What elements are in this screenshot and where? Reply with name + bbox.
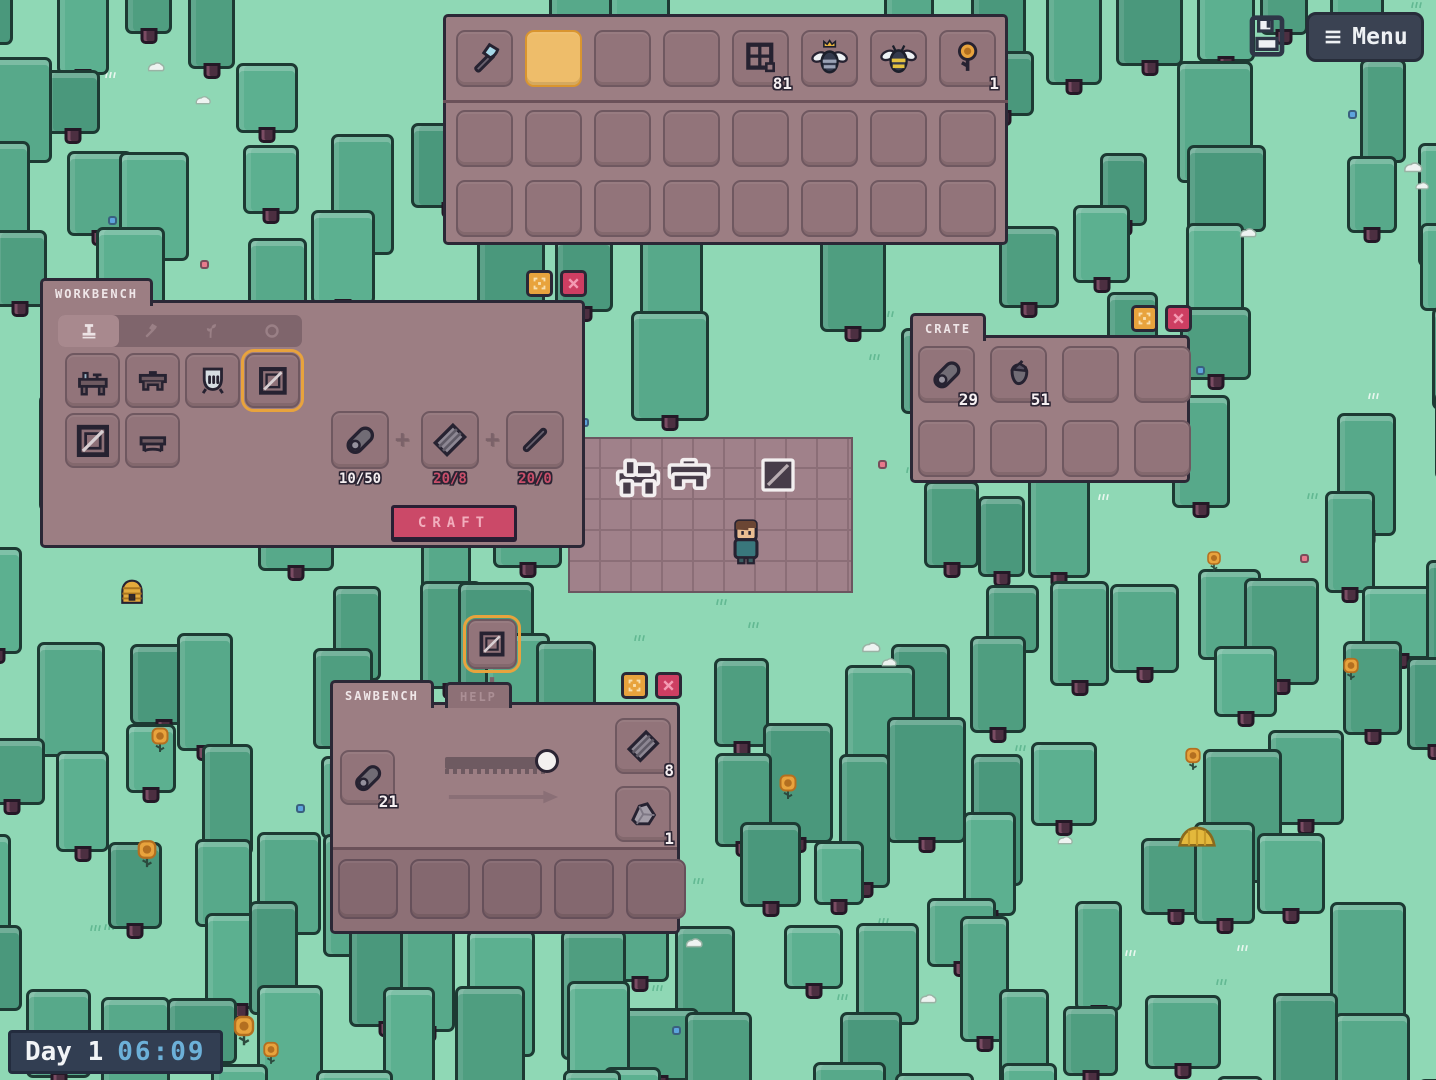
rock	[684, 936, 704, 949]
ingredient-stick	[506, 411, 564, 469]
log-icon	[349, 759, 387, 797]
empty-slot[interactable]	[482, 859, 542, 919]
arrow-right-icon	[445, 787, 563, 807]
saw-progress-handle	[535, 749, 559, 773]
saw-input-slot[interactable]: 21	[340, 750, 395, 805]
hamburger-icon	[1322, 26, 1344, 48]
sawbench-title: SAWBENCH	[330, 680, 434, 708]
empty-slot[interactable]	[732, 110, 789, 167]
empty-slot[interactable]	[663, 110, 720, 167]
day-time-badge: Day 1 06:09	[8, 1030, 223, 1074]
blue-flower	[672, 1026, 681, 1035]
floppy-disk-icon	[1247, 14, 1287, 58]
sunflower	[1206, 550, 1222, 574]
move-icon	[531, 275, 548, 292]
empty-slot[interactable]	[525, 180, 582, 237]
bench-tab-icon	[78, 320, 100, 342]
seedling-tab-icon	[200, 320, 222, 342]
rock	[860, 640, 882, 654]
tab-misc[interactable]	[241, 315, 302, 347]
move-window-button[interactable]	[526, 270, 553, 297]
crate-icon	[475, 627, 509, 661]
red-flower	[1300, 554, 1309, 563]
workbench-icon	[74, 362, 112, 400]
blue-flower	[1196, 366, 1205, 375]
empty-slot[interactable]	[732, 180, 789, 237]
menu-label: Menu	[1352, 24, 1407, 50]
empty-slot[interactable]	[594, 180, 651, 237]
rock	[1402, 160, 1424, 174]
item-count: 1	[664, 831, 674, 847]
close-icon	[660, 677, 677, 694]
sunflower	[778, 773, 798, 803]
close-icon	[1170, 310, 1187, 327]
log-icon	[927, 355, 966, 394]
furnace-icon	[194, 362, 232, 400]
empty-slot[interactable]	[1134, 346, 1191, 403]
hotbar-slot-flower[interactable]: 1	[939, 30, 996, 87]
day-label: Day 1	[25, 1037, 103, 1067]
blue-flower	[296, 804, 305, 813]
sunflower	[262, 1040, 280, 1068]
red-flower	[878, 460, 887, 469]
ingredient-log	[331, 411, 389, 469]
hotbar: 81 1	[456, 30, 996, 87]
blue-flower	[108, 216, 117, 225]
ingredient-plank	[421, 411, 479, 469]
empty-slot[interactable]	[870, 180, 927, 237]
plank-icon	[430, 420, 470, 460]
empty-slot[interactable]	[626, 859, 686, 919]
empty-slot[interactable]	[801, 110, 858, 167]
empty-slot[interactable]	[1134, 420, 1191, 477]
crate-icon	[254, 362, 292, 400]
craft-item-furnace[interactable]	[185, 353, 240, 408]
close-window-button[interactable]	[1165, 305, 1192, 332]
item-count: 21	[379, 794, 398, 810]
sawbench-icon	[134, 362, 172, 400]
crate-grid: 29 51	[918, 346, 1191, 477]
rock	[1238, 226, 1258, 239]
close-window-button[interactable]	[560, 270, 587, 297]
empty-slot[interactable]	[918, 420, 975, 477]
craft-item-crate-selected[interactable]	[245, 353, 300, 408]
item-count: 1	[989, 76, 999, 92]
bench-icon	[134, 422, 172, 460]
move-icon	[1136, 310, 1153, 327]
acorn-icon	[999, 355, 1038, 394]
bee-icon	[879, 39, 918, 78]
craft-item-sawbench[interactable]	[125, 353, 180, 408]
plank-icon	[624, 727, 662, 765]
empty-slot[interactable]	[456, 180, 513, 237]
empty-slot[interactable]	[990, 420, 1047, 477]
inventory-grid	[456, 110, 996, 237]
crate-panel: CRATE 29 51	[910, 335, 1190, 483]
close-window-button[interactable]	[655, 672, 682, 699]
craft-item-big-crate[interactable]	[65, 413, 120, 468]
rock	[918, 992, 938, 1005]
saw-output-sawdust[interactable]: 1	[615, 786, 671, 842]
beehive	[118, 576, 146, 608]
empty-slot[interactable]	[410, 859, 470, 919]
empty-slot[interactable]	[554, 859, 614, 919]
move-window-button[interactable]	[1131, 305, 1158, 332]
window-icon	[741, 39, 780, 78]
sunflower	[1184, 746, 1202, 774]
game-viewport: 81 1 WORKBENCH	[0, 0, 1436, 1080]
tab-farming[interactable]	[180, 315, 241, 347]
tab-tools[interactable]	[119, 315, 180, 347]
empty-slot[interactable]	[1062, 346, 1119, 403]
hotbar-slot-queen-bee[interactable]	[801, 30, 858, 87]
menu-button[interactable]: Menu	[1306, 12, 1424, 62]
hotbar-slot-selected[interactable]	[525, 30, 582, 87]
inventory-panel: 81 1	[443, 14, 1008, 245]
crate-slot-acorn[interactable]: 51	[990, 346, 1047, 403]
big-crate-icon	[71, 419, 115, 463]
item-count: 29	[959, 392, 978, 408]
sawbench-panel: SAWBENCH HELP 21 8 1	[330, 702, 680, 934]
plus-sign: +	[395, 425, 409, 453]
saw-teeth	[445, 769, 545, 774]
rock	[880, 656, 898, 668]
item-count: 51	[1031, 392, 1050, 408]
move-window-button[interactable]	[621, 672, 648, 699]
close-icon	[565, 275, 582, 292]
rock	[146, 60, 166, 73]
saw-queue-slots	[333, 847, 677, 931]
ingredient-count-log: 10/50	[329, 471, 391, 487]
panel-divider	[443, 100, 1008, 103]
sawdust-icon	[624, 795, 662, 833]
craft-button[interactable]: CRAFT	[391, 505, 517, 540]
empty-slot[interactable]	[870, 110, 927, 167]
red-flower	[200, 260, 209, 269]
craft-item-workbench[interactable]	[65, 353, 120, 408]
empty-slot[interactable]	[801, 180, 858, 237]
sunflower	[150, 726, 170, 756]
axe-tab-icon	[139, 320, 161, 342]
rock	[1414, 180, 1430, 191]
crate-slot-log[interactable]: 29	[918, 346, 975, 403]
hotbar-slot-empty[interactable]	[594, 30, 651, 87]
sunflower	[136, 838, 158, 872]
rock	[194, 94, 212, 106]
tab-structures[interactable]	[58, 315, 119, 347]
queen-bee-icon	[810, 39, 849, 78]
ingredient-count-stick: 20/0	[504, 471, 566, 487]
stick-icon	[515, 420, 555, 460]
empty-slot[interactable]	[939, 110, 996, 167]
plus-sign: +	[485, 425, 499, 453]
workbench-panel: WORKBENCH + +	[40, 300, 585, 548]
time-label: 06:09	[117, 1037, 205, 1067]
empty-slot[interactable]	[939, 180, 996, 237]
flower-icon	[948, 39, 987, 78]
ring-tab-icon	[261, 320, 283, 342]
recipe-result-slot	[467, 619, 517, 669]
move-icon	[626, 677, 643, 694]
rock	[1056, 834, 1074, 846]
hotbar-slot-empty[interactable]	[663, 30, 720, 87]
saw-output-plank[interactable]: 8	[615, 718, 671, 774]
hotbar-slot-bee[interactable]	[870, 30, 927, 87]
hotbar-slot-axe[interactable]	[456, 30, 513, 87]
sunflower	[1342, 656, 1360, 684]
empty-slot[interactable]	[456, 110, 513, 167]
save-button[interactable]	[1245, 13, 1289, 61]
workbench-tab-bar	[58, 315, 302, 347]
sunflower	[232, 1014, 256, 1050]
workbench-title: WORKBENCH	[40, 278, 153, 306]
axe-icon	[465, 39, 504, 78]
empty-slot[interactable]	[594, 110, 651, 167]
empty-slot[interactable]	[338, 859, 398, 919]
craft-item-bench[interactable]	[125, 413, 180, 468]
empty-slot[interactable]	[1062, 420, 1119, 477]
ingredient-count-plank: 20/8	[419, 471, 481, 487]
empty-slot[interactable]	[525, 110, 582, 167]
log-icon	[340, 420, 380, 460]
saw-progress-bar	[445, 757, 545, 769]
blue-flower	[1348, 110, 1357, 119]
help-tab[interactable]: HELP	[445, 682, 512, 708]
crate-title: CRATE	[910, 313, 986, 341]
empty-slot[interactable]	[663, 180, 720, 237]
hotbar-slot-window[interactable]: 81	[732, 30, 789, 87]
item-count: 8	[664, 763, 674, 779]
craftable-items-grid	[65, 353, 300, 468]
item-count: 81	[773, 76, 792, 92]
yellow-tent	[1176, 824, 1218, 848]
